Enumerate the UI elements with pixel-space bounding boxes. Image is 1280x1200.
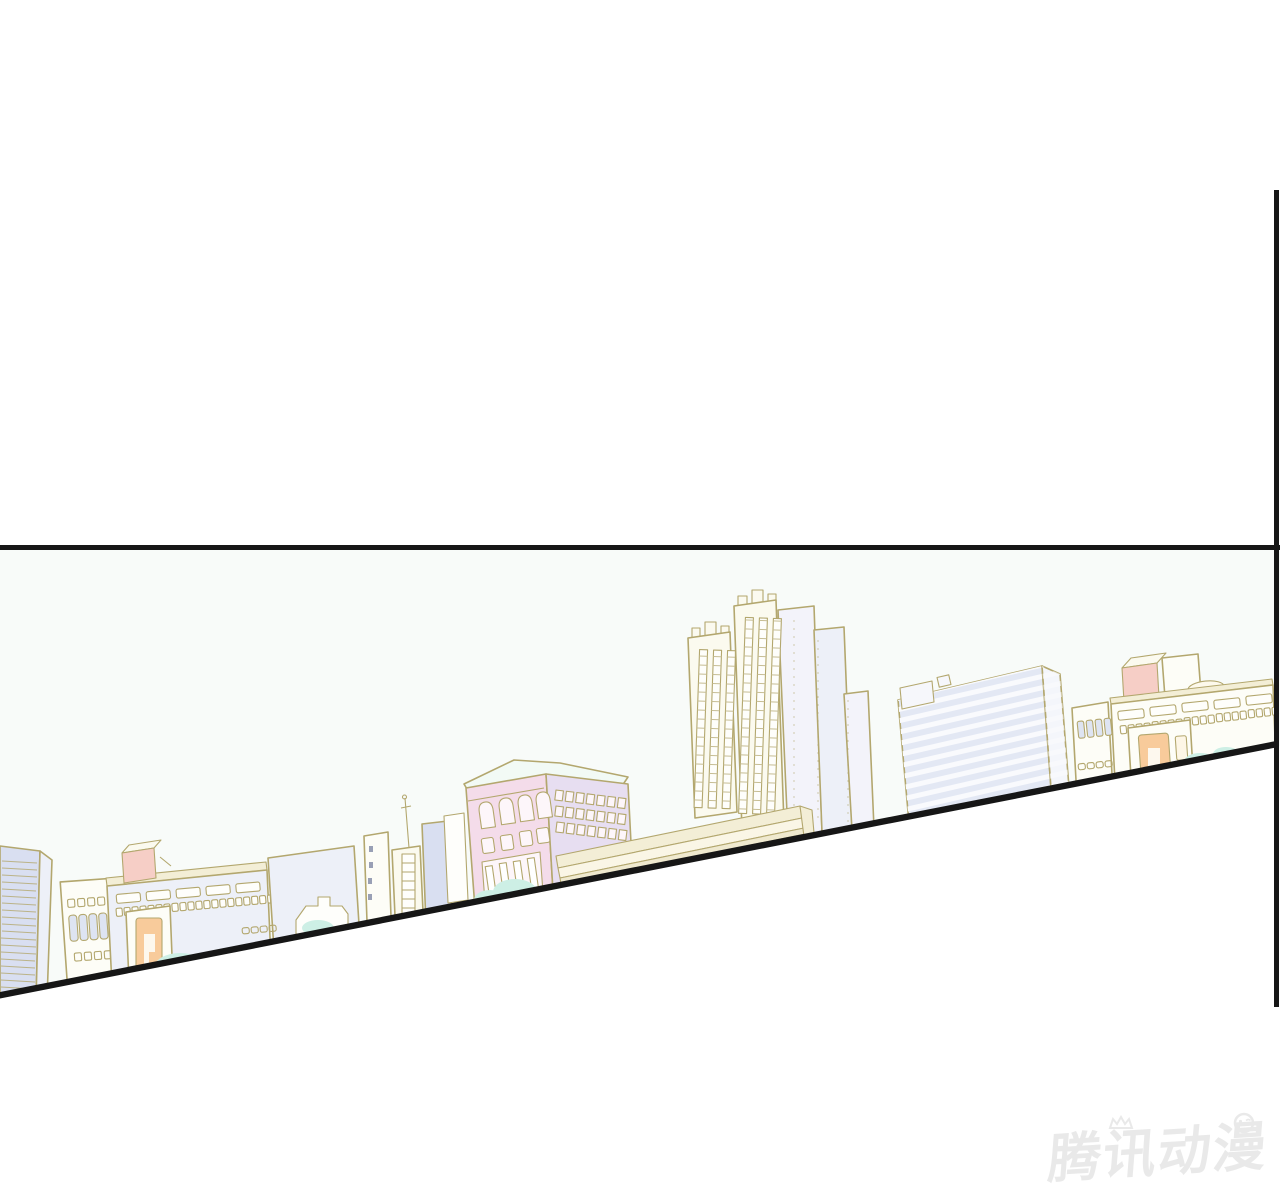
- building-office-slab: [898, 666, 1070, 834]
- comic-panel: [0, 0, 1280, 1200]
- building-left-striped-tower: [0, 846, 52, 1000]
- panel-border-right: [1274, 190, 1279, 1007]
- tower-finial-2: [734, 590, 784, 830]
- tower-finial-1: [688, 622, 737, 818]
- panel-border-top: [0, 545, 1280, 550]
- roof-box-front: [122, 848, 156, 883]
- building-back-block: [444, 813, 468, 903]
- comic-page: 腾讯动漫: [0, 0, 1280, 1200]
